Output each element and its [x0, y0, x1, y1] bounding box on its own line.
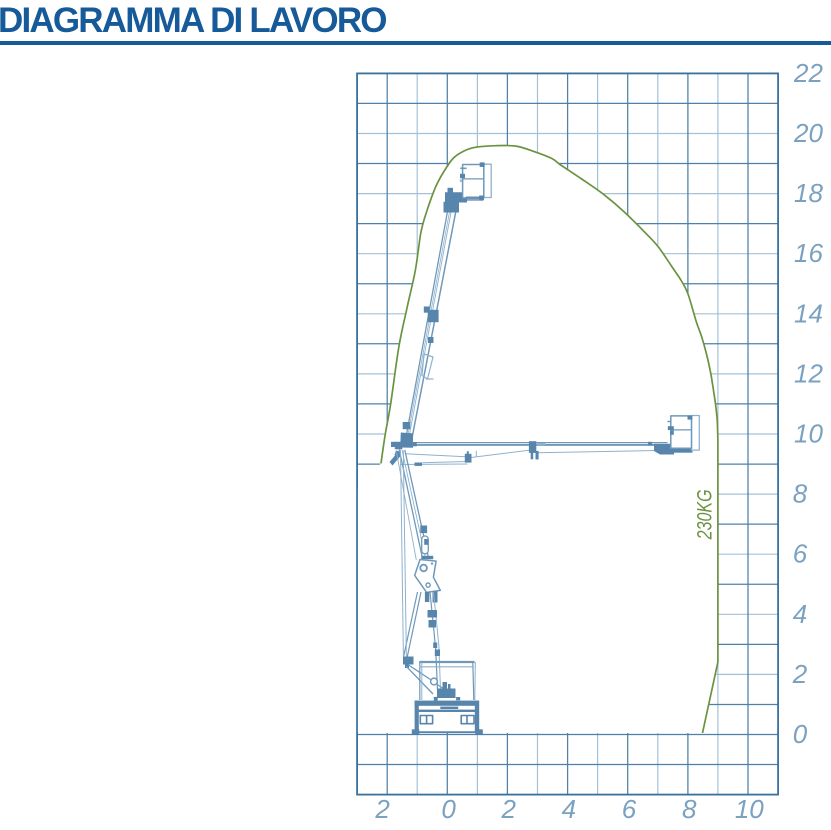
- svg-text:14: 14: [794, 298, 823, 328]
- svg-text:0: 0: [793, 719, 808, 749]
- svg-text:0: 0: [441, 794, 456, 824]
- svg-text:2: 2: [374, 794, 390, 824]
- svg-text:20: 20: [793, 118, 823, 148]
- svg-text:8: 8: [682, 794, 697, 824]
- svg-text:4: 4: [562, 794, 576, 824]
- svg-text:16: 16: [794, 238, 823, 268]
- svg-text:8: 8: [793, 479, 808, 509]
- svg-text:2: 2: [792, 659, 808, 689]
- svg-text:4: 4: [793, 599, 807, 629]
- svg-text:18: 18: [794, 178, 823, 208]
- svg-text:6: 6: [622, 794, 637, 824]
- svg-text:230KG: 230KG: [694, 489, 717, 540]
- svg-text:22: 22: [793, 58, 823, 88]
- svg-text:10: 10: [794, 419, 823, 449]
- svg-text:2: 2: [500, 794, 516, 824]
- svg-text:10: 10: [735, 794, 764, 824]
- svg-text:6: 6: [793, 539, 808, 569]
- svg-text:12: 12: [794, 358, 823, 388]
